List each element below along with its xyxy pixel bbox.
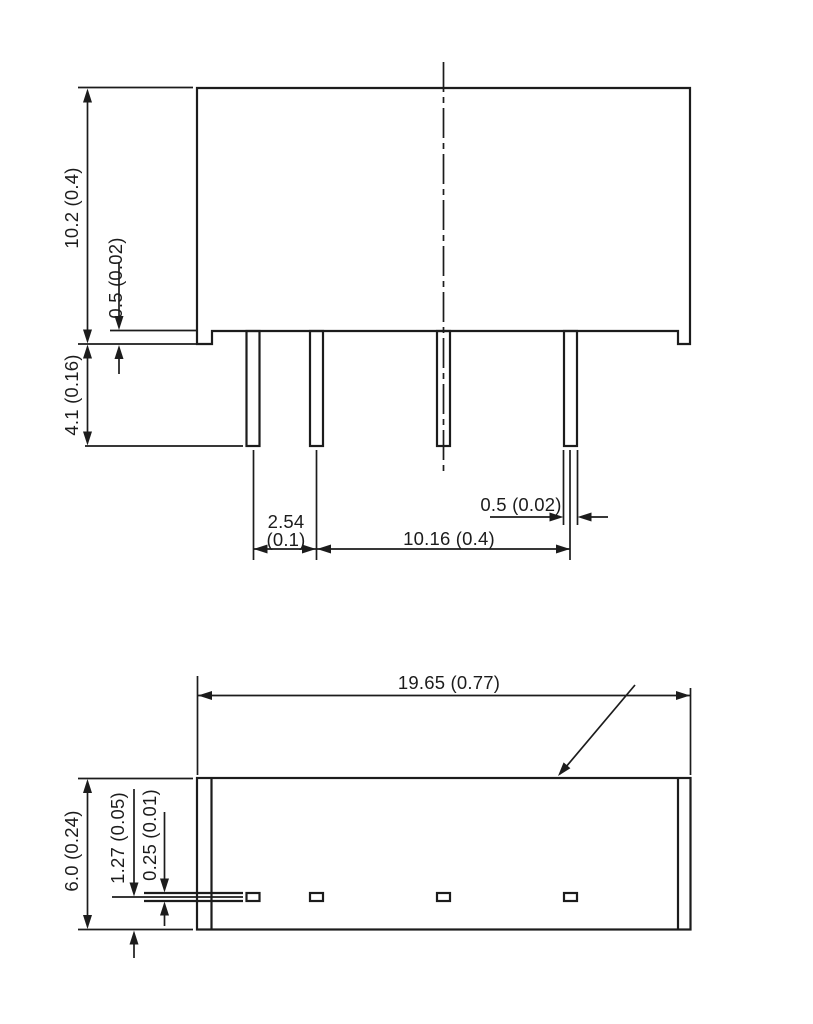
arrowhead-left xyxy=(578,513,592,522)
dim-body-length: 19.65 (0.77) xyxy=(198,672,691,775)
dim-pin-pitch: 2.54 (0.1) xyxy=(254,450,317,560)
drawing-page: 10.2 (0.4) 0.5 (0.02) 4.1 (0.16) xyxy=(0,0,813,1024)
arrowhead-right xyxy=(676,691,690,700)
bottom-pin-2 xyxy=(310,893,323,901)
surface-leader xyxy=(558,685,635,776)
dim-pin-thickness: 0.25 (0.01) xyxy=(139,789,169,926)
dim-label-pin-row-offset: 1.27 (0.05) xyxy=(107,792,128,884)
dim-label-pin-span: 10.16 (0.4) xyxy=(403,528,495,549)
dim-label-pin-length: 4.1 (0.16) xyxy=(61,354,82,435)
arrowhead-down xyxy=(160,879,169,893)
dim-label-pin-thickness: 0.25 (0.01) xyxy=(139,789,160,881)
arrowhead-up xyxy=(115,345,124,359)
arrowhead-up xyxy=(83,779,92,793)
bottom-pin-3 xyxy=(437,893,450,901)
dim-pin-length: 4.1 (0.16) xyxy=(61,345,243,447)
dim-pin-width: 0.5 (0.02) xyxy=(480,450,608,560)
arrowhead-left xyxy=(198,691,212,700)
bottom-view: 19.65 (0.77) 6.0 (0.24) 1.27 (0.05) xyxy=(61,672,691,958)
arrowhead-up xyxy=(130,931,139,945)
arrowhead-down xyxy=(83,330,92,344)
arrowhead-up xyxy=(83,345,92,359)
front-pin-4 xyxy=(564,331,577,446)
dim-pin-row-offset: 1.27 (0.05) xyxy=(107,789,139,958)
bottom-pin-4 xyxy=(564,893,577,901)
arrowhead-up xyxy=(160,902,169,916)
dim-pin-span: 10.16 (0.4) xyxy=(317,528,570,554)
technical-drawing: 10.2 (0.4) 0.5 (0.02) 4.1 (0.16) xyxy=(0,0,813,1024)
arrowhead-down xyxy=(83,915,92,929)
front-view: 10.2 (0.4) 0.5 (0.02) 4.1 (0.16) xyxy=(61,62,690,560)
arrowhead-right xyxy=(556,545,570,554)
dim-body-height: 10.2 (0.4) xyxy=(61,88,193,344)
arrowhead-left xyxy=(317,545,331,554)
bottom-pin-1 xyxy=(247,893,260,901)
dim-label-body-depth: 6.0 (0.24) xyxy=(61,810,82,891)
dim-label-pin-pitch-inch: (0.1) xyxy=(266,529,305,550)
leader-line xyxy=(560,685,635,774)
arrowhead-down xyxy=(130,883,139,897)
dim-standoff: 0.5 (0.02) xyxy=(78,237,196,374)
arrowhead-up xyxy=(83,89,92,103)
dim-label-pin-width: 0.5 (0.02) xyxy=(480,494,561,515)
arrowhead-left xyxy=(254,545,268,554)
bottom-body-outline xyxy=(197,778,691,930)
front-pin-1 xyxy=(247,331,260,446)
dim-label-body-length: 19.65 (0.77) xyxy=(398,672,500,693)
dim-label-standoff: 0.5 (0.02) xyxy=(105,237,126,318)
dim-label-body-height: 10.2 (0.4) xyxy=(61,167,82,248)
front-pin-2 xyxy=(310,331,323,446)
arrowhead-down xyxy=(83,432,92,446)
